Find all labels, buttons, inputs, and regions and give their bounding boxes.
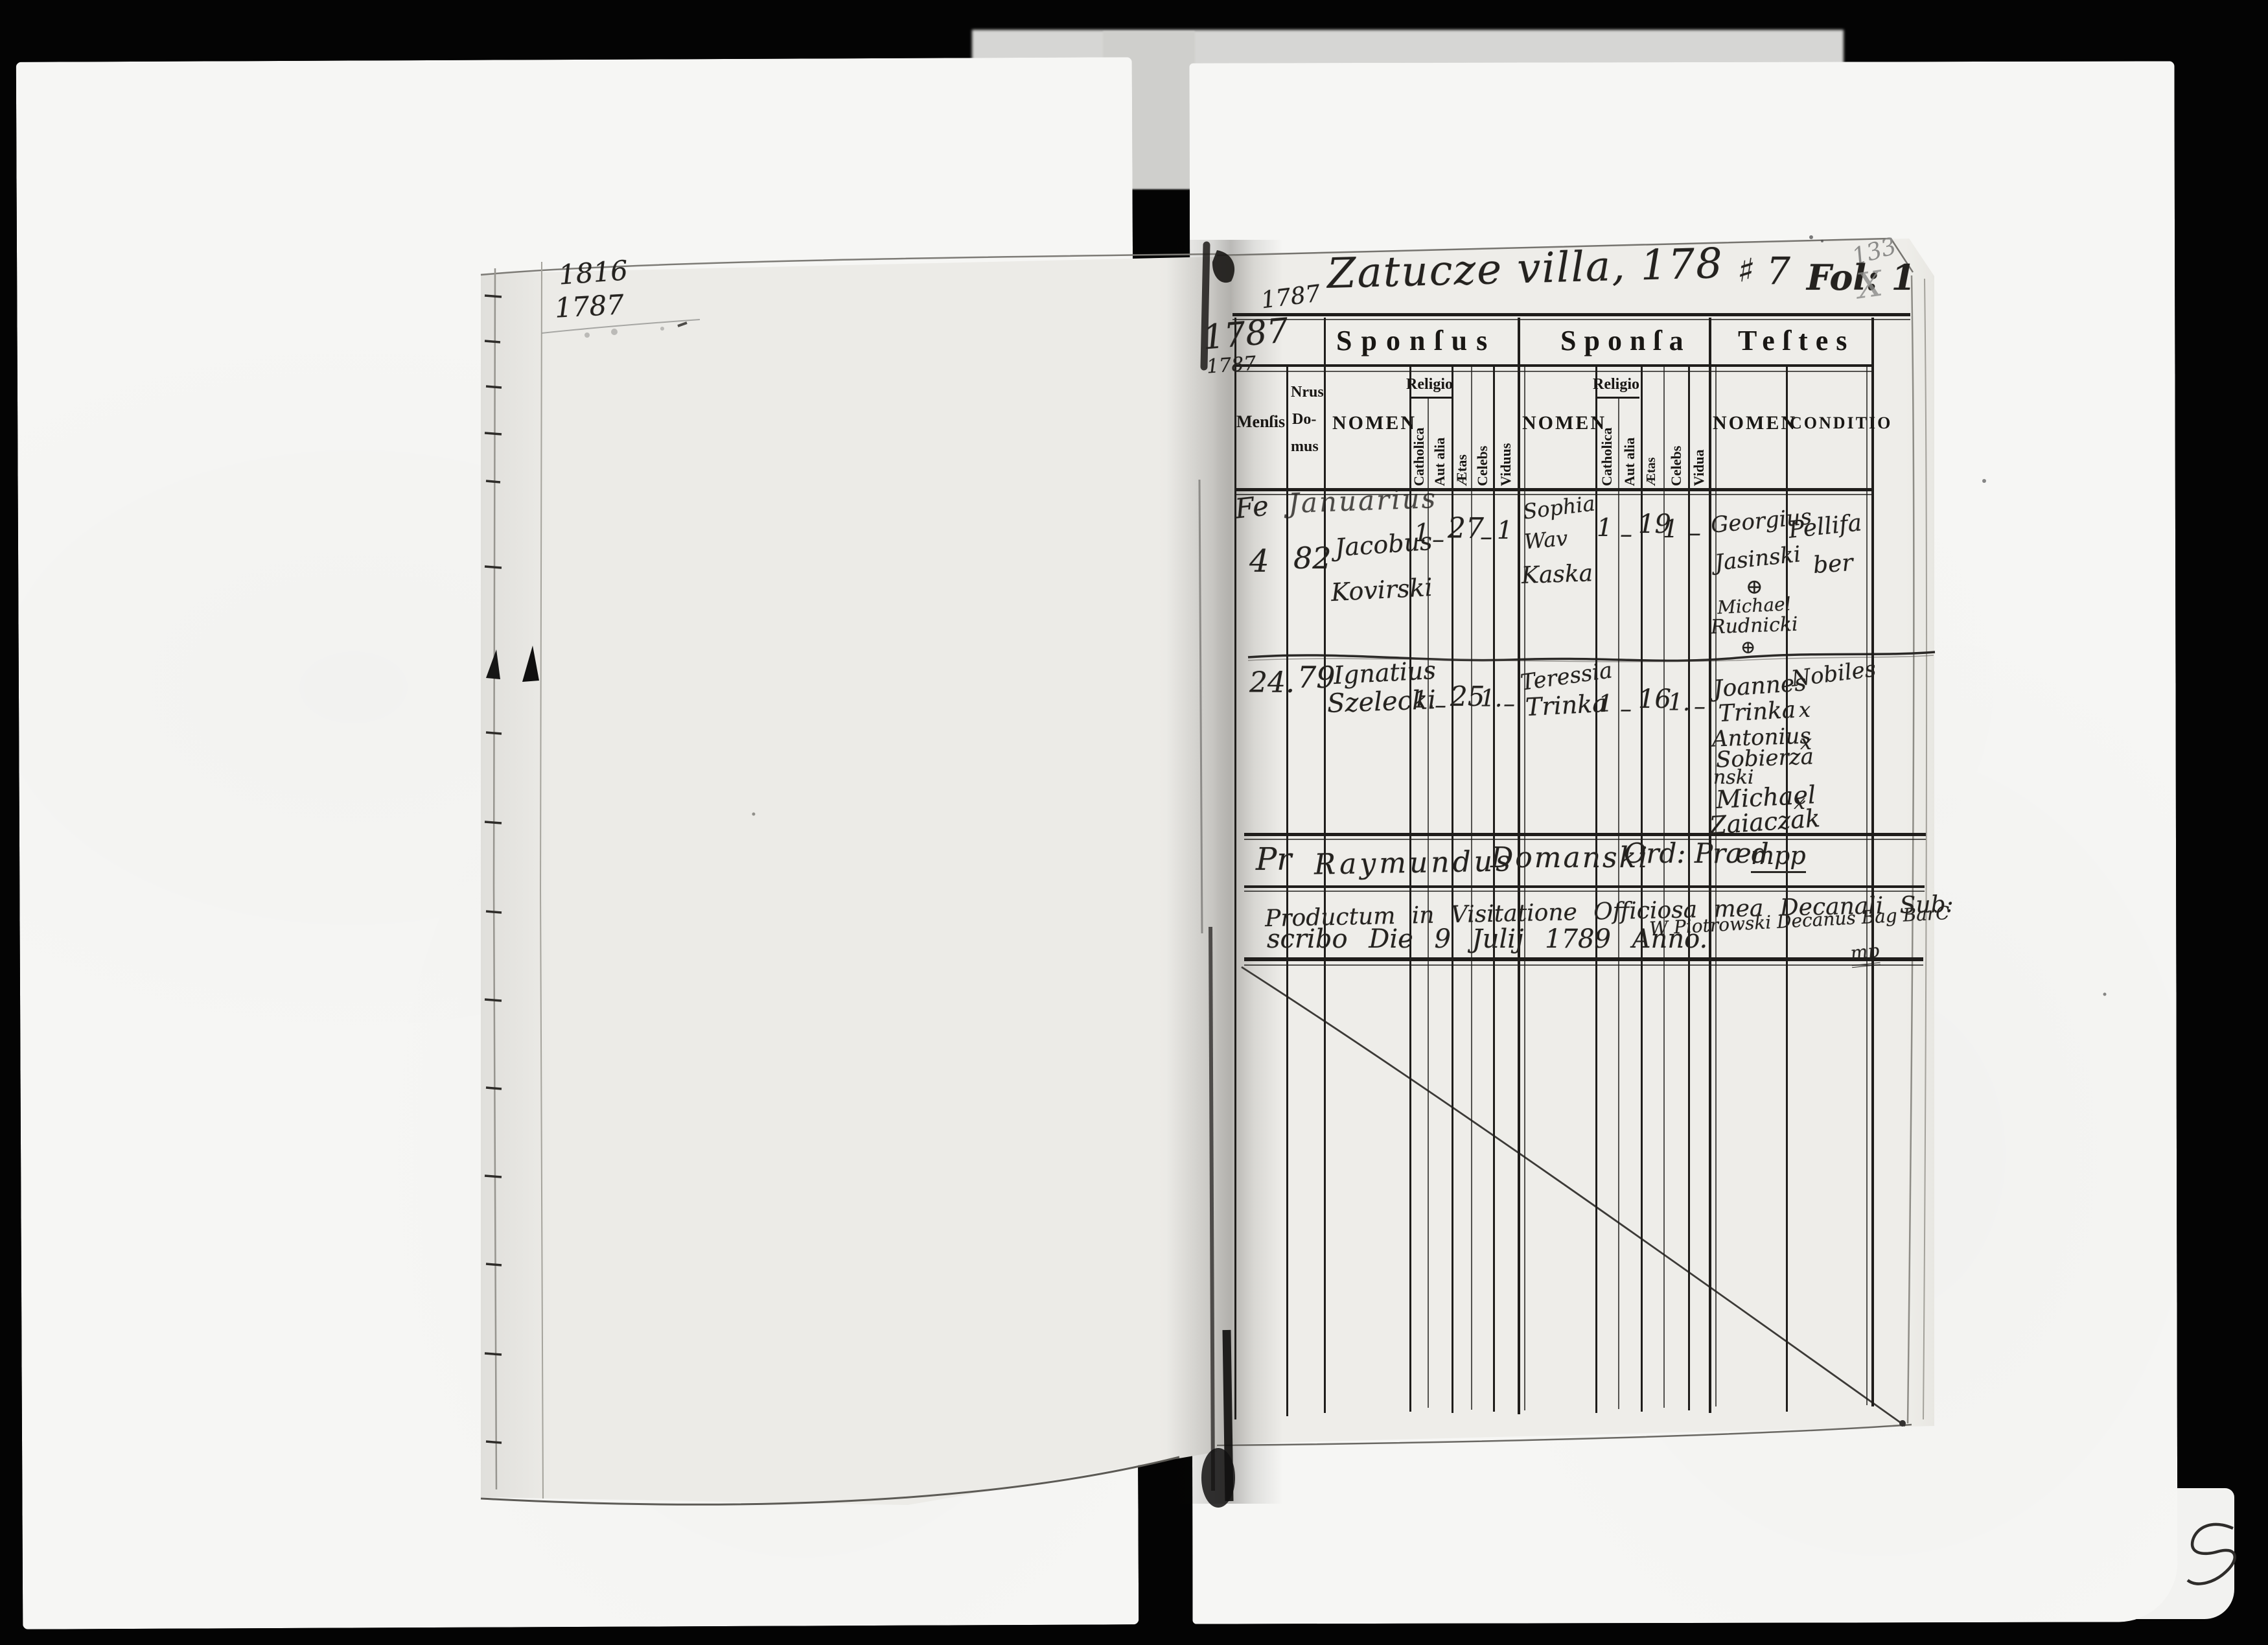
signature-initial: Pr (1256, 841, 1291, 878)
entry1-testis2-cross-mark: ⊕ (1741, 636, 1755, 658)
entry2-conditio-mark-1: x (1799, 697, 1811, 722)
left-page-year-note-top: 1816 (557, 254, 629, 290)
entry2-testis1-name-2: Trinka (1718, 697, 1796, 727)
left-page-year-note-bottom: 1787 (554, 288, 625, 324)
table-rule (1493, 364, 1495, 1412)
col-header-catholica-sponsus: Catholica (1411, 375, 1428, 486)
col-header-vidua-sponsa: Vidua (1691, 375, 1707, 486)
table-rule (1234, 371, 1871, 372)
signature-firstname: Raymundus (1314, 845, 1514, 881)
entry2-sponsa-aetas: 16 (1638, 684, 1671, 714)
table-rule (1232, 313, 1910, 316)
col-header-nomen-sponsa: NOMEN (1522, 412, 1606, 434)
col-header-nomen-testes: NOMEN (1713, 412, 1797, 434)
col-header-nrus-2: Do- (1292, 411, 1316, 428)
table-rule (1234, 318, 1236, 1419)
register-table (0, 0, 2268, 1645)
col-header-mensis: Menſis (1236, 412, 1285, 432)
entry2-sponsa-celebs: 1. (1668, 690, 1690, 716)
col-header-celebs-sponsa: Celebs (1668, 375, 1685, 486)
col-header-aetas-sponsa: Ætas (1644, 375, 1659, 486)
entry2-sponsa-catholica: 1 (1598, 691, 1613, 717)
entry1-sponsus-aut-alia: – (1432, 525, 1444, 554)
cell-year-small: 1787 (1206, 352, 1257, 378)
entry2-sponsa-name-2: Trinka (1525, 689, 1608, 722)
entry2-sponsus-catholica: 1. (1413, 687, 1435, 714)
entry2-day: 24. (1249, 666, 1295, 699)
table-rule (1286, 364, 1288, 1416)
visitation-mp: mp (1849, 940, 1880, 968)
entry1-sponsa-name-2: Wav (1523, 526, 1568, 554)
table-rule (1409, 364, 1411, 1412)
entry2-sponsa-aut-alia: – (1620, 696, 1632, 723)
table-rule (1232, 319, 1910, 320)
table-rule (1244, 839, 1926, 840)
entry1-sponsa-name-3: Kaska (1521, 560, 1593, 589)
table-rule (1234, 364, 1871, 367)
col-header-nomen-sponsus: NOMEN (1332, 412, 1417, 434)
col-header-celebs-sponsus: Celebs (1474, 375, 1491, 486)
entry1-sponsus-aetas: 27 (1448, 512, 1484, 545)
col-header-viduus-sponsus: Viduus (1498, 375, 1514, 486)
table-rule (1244, 964, 1923, 966)
col-header-nrus-1: Nrus (1291, 384, 1324, 401)
entry2-sponsus-viduus: – (1503, 691, 1515, 717)
page-title-year-last-digit: 7 (1766, 249, 1790, 293)
table-rule (1244, 957, 1923, 961)
entry1-mensis-prefix: Fe (1234, 489, 1271, 524)
col-header-aetas-sponsus: Ætas (1453, 375, 1470, 486)
entry2-sponsus-aut-alia: – (1435, 692, 1446, 719)
entry2-sponsa-vidua: – (1694, 694, 1706, 720)
entry1-domus: 82 (1293, 541, 1332, 576)
entry1-sponsus-celebs: – (1480, 522, 1492, 551)
entry1-sponsa-celebs: 1 (1663, 515, 1678, 543)
col-header-conditio: CONDITIO (1790, 414, 1892, 433)
cell-year-big: 1787 (1201, 311, 1290, 357)
entry1-sponsa-vidua: – (1689, 519, 1701, 547)
col-header-aut-alia-sponsus: Aut alia (1431, 375, 1448, 486)
entry1-sponsa-aut-alia: – (1620, 520, 1632, 548)
table-rule (1244, 885, 1925, 888)
entry1-conditio-2: ber (1812, 550, 1854, 579)
signature-mpp: mpp (1751, 841, 1806, 873)
group-header-sponsa: Sponſa (1560, 324, 1691, 357)
entry1-sponsa-catholica: 1 (1597, 513, 1612, 542)
col-header-catholica-sponsa: Catholica (1599, 375, 1615, 486)
table-rule (1244, 833, 1926, 836)
entry2-conditio-mark-3: x (1794, 789, 1805, 814)
col-header-aut-alia-sponsa: Aut alia (1621, 375, 1638, 486)
table-rule (1871, 318, 1874, 1406)
visitation-line-2: scribo Die 9 Julij 1789 Anno. (1267, 924, 1707, 954)
entry1-day: 4 (1249, 543, 1269, 579)
entry1-sponsus-viduus: 1 (1497, 516, 1512, 544)
entry2-sponsus-name-1: Ignatius (1333, 656, 1437, 690)
signature-order: Ord: Præd (1624, 837, 1769, 869)
group-header-sponsus: Sponſus (1336, 324, 1496, 357)
entry1-sponsus-name-2: Kovirski (1330, 573, 1433, 607)
group-header-testes: Teſtes (1738, 324, 1855, 357)
entry2-sponsus-celebs: 1. (1480, 686, 1502, 712)
archival-scan: 1816 1787 133 Zatucze villa, 178 ♯ 7 Fol… (0, 0, 2268, 1645)
entry1-sponsus-catholica: 1 (1414, 519, 1429, 547)
col-header-nrus-3: mus (1291, 438, 1319, 456)
table-rule (1244, 891, 1925, 892)
entry2-conditio-mark-2: x (1800, 730, 1812, 754)
entry1-testis2-name-2: Rudnicki (1710, 613, 1798, 639)
table-rule (1866, 364, 1868, 1405)
entry1-month: Januarius (1288, 482, 1438, 519)
